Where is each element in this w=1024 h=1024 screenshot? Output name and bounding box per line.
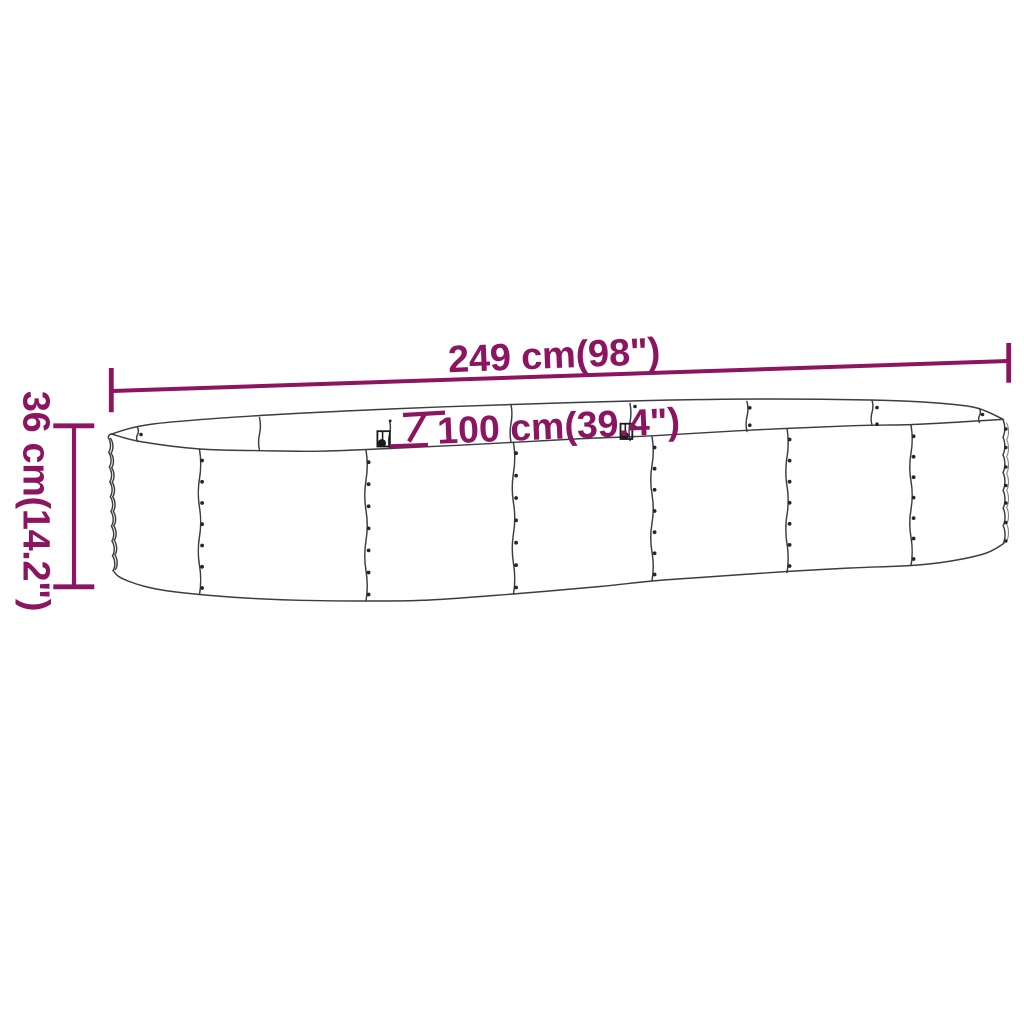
- svg-text:36 cm(14.2"): 36 cm(14.2"): [15, 391, 57, 611]
- svg-text:100 cm(39.4"): 100 cm(39.4"): [436, 400, 680, 452]
- svg-text:249 cm(98"): 249 cm(98"): [447, 331, 661, 381]
